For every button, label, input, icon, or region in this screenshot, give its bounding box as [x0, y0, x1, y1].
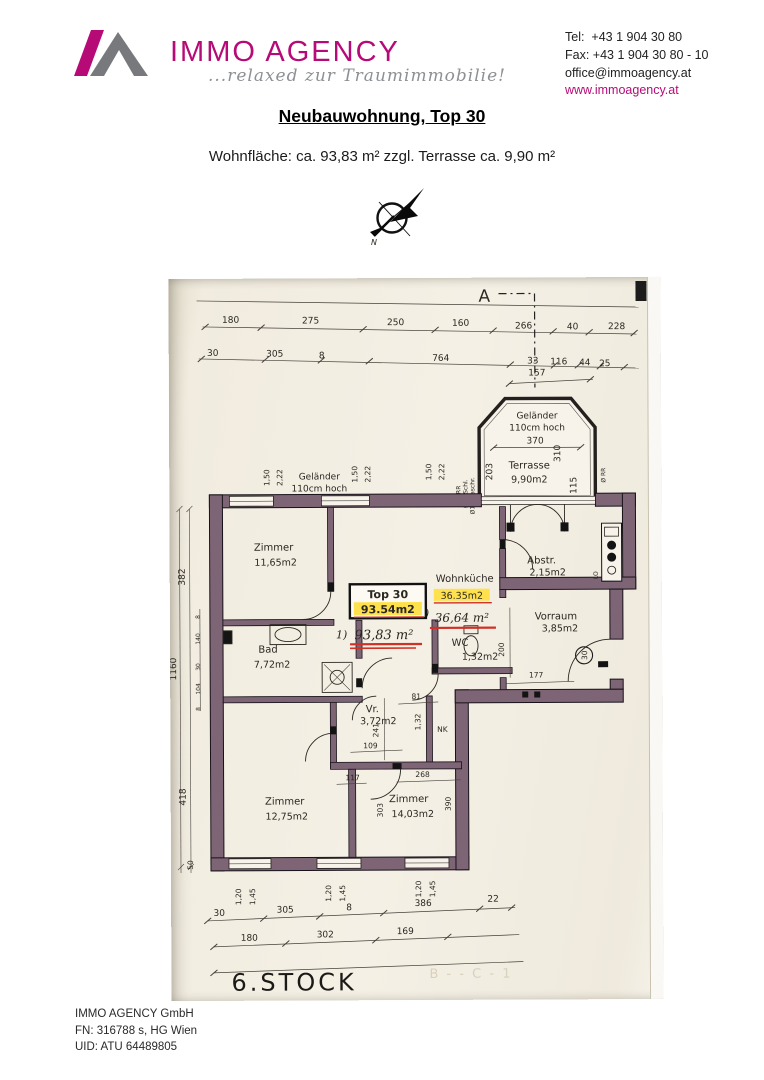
room-area-abstellraum: 2,15m2 — [529, 567, 566, 578]
compass-north-icon: N — [366, 186, 428, 248]
dim-label: 241 — [371, 723, 380, 738]
floorplan-scan: 180 275 250 160 266 40 228 30 305 8 764 … — [168, 277, 663, 1001]
dim-label: 2,22 — [275, 469, 284, 486]
unit-label-box: Top 30 93.54m2 — [350, 584, 426, 618]
annotation-rr2: Ø RR — [600, 468, 607, 483]
dim-label: 8 — [195, 707, 202, 711]
floorplan-drawing: 180 275 250 160 266 40 228 30 305 8 764 … — [168, 277, 663, 1001]
room-area-terrasse: 9,90m2 — [511, 474, 548, 485]
unit-area-printed: 93.54m2 — [361, 603, 415, 616]
terrace-railing-note: 110cm hoch — [509, 423, 565, 433]
bath-fixtures — [223, 624, 478, 693]
dim-label: 228 — [608, 322, 625, 332]
dim-label: 50 — [186, 860, 195, 870]
dim-label: 116 — [550, 357, 567, 367]
dim-label: 30 — [213, 909, 225, 919]
email-link[interactable]: office@immoagency.at — [565, 65, 709, 83]
phone-number: Tel: +43 1 904 30 80 — [565, 29, 709, 47]
company-footer: IMMO AGENCY GmbH FN: 316788 s, HG Wien U… — [75, 1006, 197, 1056]
dim-label: 382 — [178, 568, 188, 585]
annotation-lo: LO — [593, 571, 600, 579]
dim-label: 180 — [222, 316, 239, 326]
dim-label: 764 — [432, 354, 449, 364]
hand-area-total: 93,83 m² — [355, 628, 414, 643]
compass-north-label: N — [371, 238, 377, 247]
room-area-wc: 1,32m2 — [462, 652, 499, 663]
entry-door-number: 30 — [580, 650, 589, 660]
living-area-subtitle: Wohnfläche: ca. 93,83 m² zzgl. Terrasse … — [0, 148, 764, 165]
annotation-rr: RR — [455, 486, 462, 494]
dim-label: 160 — [452, 319, 469, 329]
dim-label: 117 — [345, 773, 360, 782]
dim-label: 386 — [415, 899, 432, 909]
dim-label: 1,50 — [350, 466, 359, 483]
dim-label: 1160 — [169, 657, 179, 680]
bleed-through-text: B - - C - 1 — [429, 967, 512, 982]
kitchen-fixtures — [601, 523, 621, 581]
dim-label: 180 — [241, 934, 258, 944]
website-link[interactable]: www.immoagency.at — [565, 82, 709, 100]
room-label-wc: WC — [452, 638, 469, 649]
annotation-nk: NK — [437, 725, 449, 734]
room-area-wohnkueche: 36.35m2 — [441, 591, 484, 602]
room-area-bad: 7,72m2 — [254, 660, 291, 671]
dim-label: 268 — [415, 770, 430, 779]
dim-label: 1,20 — [414, 880, 423, 897]
dim-label: 30 — [207, 349, 219, 359]
room-area-vorraum: 3,85m2 — [542, 623, 579, 634]
dim-label: 33 — [527, 356, 538, 366]
dim-label: 310 — [553, 444, 563, 461]
dim-label: 8 — [346, 903, 352, 913]
room-label-abstellraum: Abstr. — [527, 555, 556, 566]
page-title: Neubauwohnung, Top 30 — [0, 106, 764, 127]
room-label-vorraum: Vorraum — [535, 611, 577, 622]
expose-page: IMMO AGENCY ...relaxed zur Traumimmobili… — [0, 0, 764, 1080]
dim-label: 2,22 — [363, 466, 372, 483]
dim-label: 305 — [277, 906, 294, 916]
dim-label: 370 — [527, 436, 544, 446]
dim-label: 203 — [485, 463, 495, 480]
room-area-zimmer1: 11,65m2 — [254, 558, 297, 569]
room-label-bad: Bad — [258, 645, 277, 656]
hand-note-prefix: 1) — [336, 628, 347, 641]
floor-label: 6.STOCK — [231, 968, 356, 997]
brand-tagline: ...relaxed zur Traumimmobilie! — [208, 66, 488, 86]
room-label-wohnkueche: Wohnküche — [436, 574, 494, 585]
dim-label: 250 — [387, 318, 404, 328]
dim-label: 1,45 — [338, 885, 347, 902]
contact-block: Tel: +43 1 904 30 80 Fax: +43 1 904 30 8… — [565, 29, 709, 100]
room-label-terrasse: Terrasse — [508, 460, 550, 471]
room-label-zimmer3: Zimmer — [389, 794, 429, 805]
railing-note-left: 110cm hoch — [292, 484, 348, 494]
cut-off-mark — [635, 281, 646, 301]
dim-label: 40 — [567, 322, 579, 332]
section-marker-label: A — [478, 287, 490, 307]
dim-label: 104 — [195, 683, 202, 695]
dim-label: 30 — [195, 663, 202, 671]
room-label-vr: Vr. — [366, 704, 379, 715]
dim-label: 1,32 — [413, 713, 422, 730]
dim-label: 1,50 — [424, 463, 433, 480]
dim-label: 25 — [599, 359, 610, 369]
dim-label: 418 — [179, 788, 189, 805]
terrace-railing-note: Geländer — [516, 411, 558, 421]
dim-label: 177 — [529, 670, 544, 679]
dim-label: 303 — [376, 803, 385, 818]
dim-label: 157 — [528, 368, 545, 378]
top-dimension-lines — [197, 299, 639, 372]
dim-label: 1,20 — [234, 888, 243, 905]
dim-label: 169 — [397, 927, 414, 937]
dim-label: 44 — [579, 358, 591, 368]
dim-label: 81 — [411, 692, 421, 701]
room-label-zimmer1: Zimmer — [254, 543, 294, 554]
brand-name: IMMO AGENCY — [170, 36, 400, 69]
hand-area-wohnkueche: 36,64 m² — [435, 611, 490, 625]
dim-label: 1,45 — [428, 880, 437, 897]
dim-label: 305 — [266, 350, 283, 360]
dim-label: 2,22 — [437, 463, 446, 480]
unit-number: Top 30 — [367, 588, 408, 601]
dim-label: 1,20 — [324, 885, 333, 902]
fax-number: Fax: +43 1 904 30 80 - 10 — [565, 47, 709, 65]
dim-label: 200 — [497, 642, 506, 657]
dim-label: 1,45 — [248, 888, 257, 905]
room-label-zimmer2: Zimmer — [265, 796, 305, 807]
entry-door-marker: 30 — [576, 647, 593, 664]
dim-label: 8 — [319, 351, 325, 361]
footer-company: IMMO AGENCY GmbH — [75, 1006, 197, 1023]
logo-mark-icon — [74, 28, 160, 80]
room-area-zimmer2: 12,75m2 — [266, 811, 309, 822]
dim-label: 275 — [302, 316, 319, 326]
dim-label: 390 — [444, 796, 453, 811]
dim-label: 140 — [195, 633, 202, 645]
dim-label: 115 — [569, 477, 579, 494]
dim-label: 266 — [515, 321, 532, 331]
room-area-zimmer3: 14,03m2 — [391, 809, 434, 820]
footer-register: FN: 316788 s, HG Wien — [75, 1023, 197, 1040]
dim-label: 22 — [487, 895, 498, 905]
footer-uid: UID: ATU 64489805 — [75, 1039, 197, 1056]
dim-label: 1,50 — [262, 469, 271, 486]
railing-note-left: Geländer — [299, 472, 341, 482]
dim-label: 302 — [317, 930, 334, 940]
dim-label: 109 — [363, 741, 378, 750]
dim-label: 8 — [195, 615, 202, 619]
